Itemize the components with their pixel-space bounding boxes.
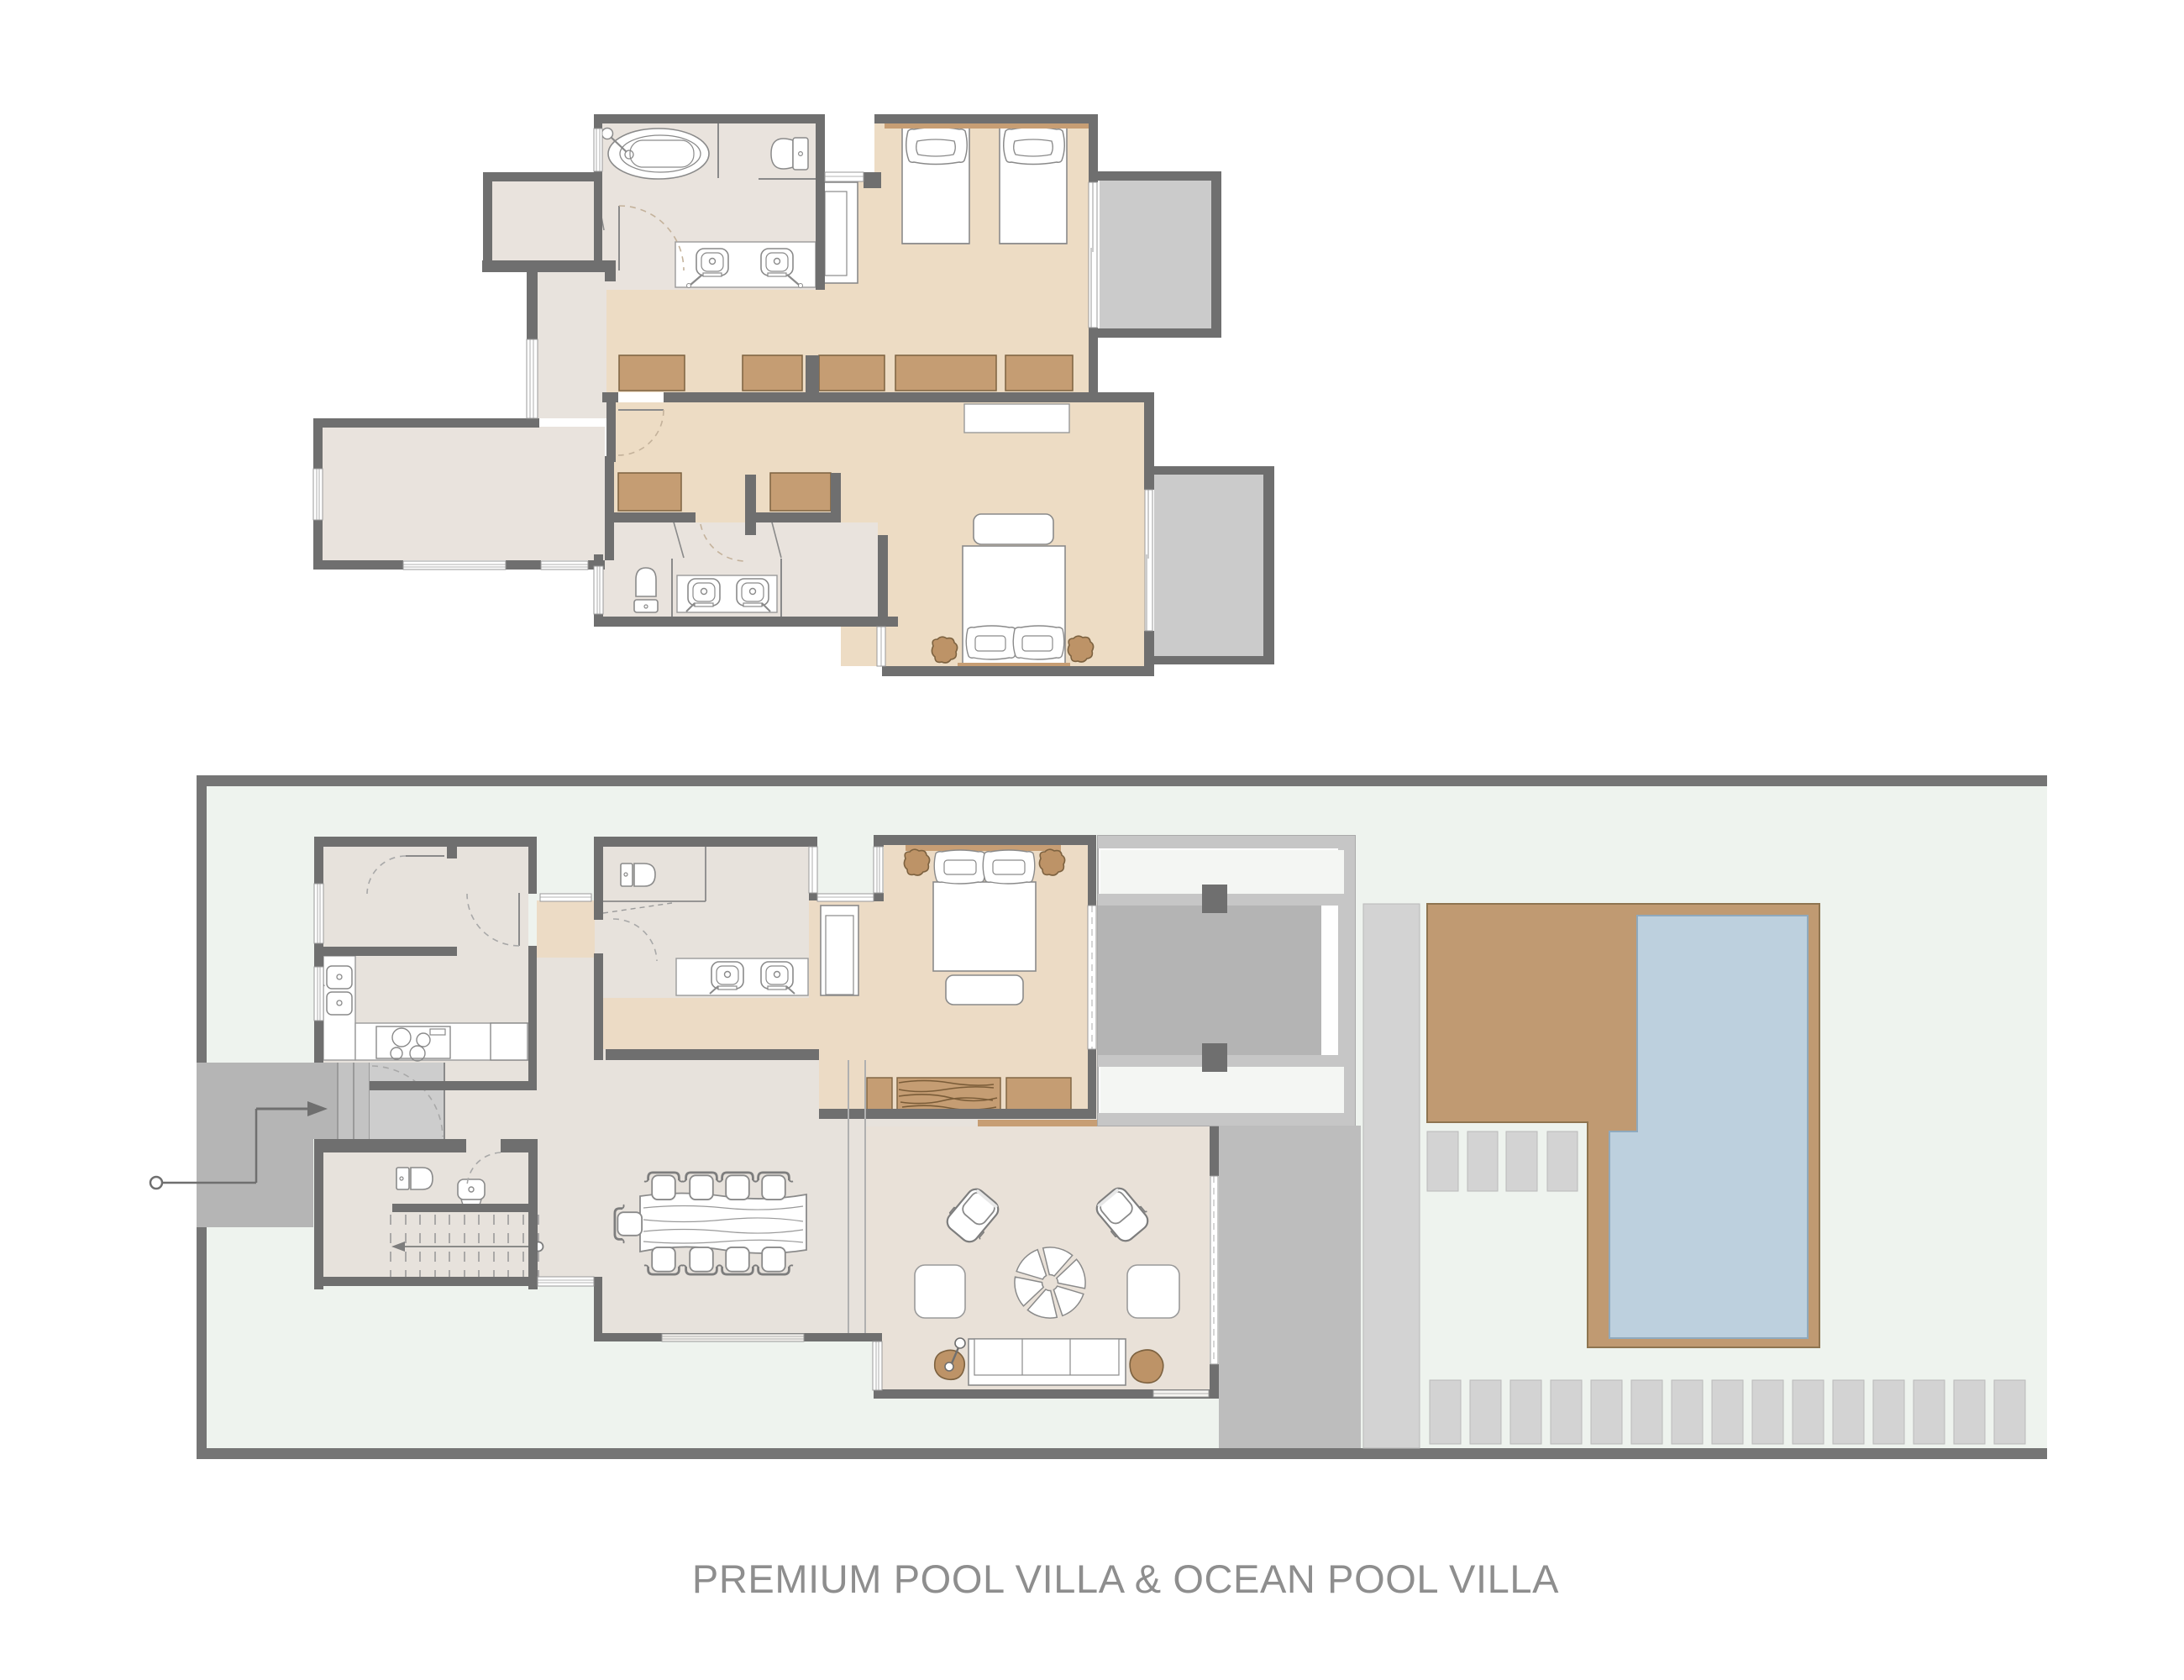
svg-text:PREMIUM POOL VILLA & OCEAN POO: PREMIUM POOL VILLA & OCEAN POOL VILLA [692, 1557, 1559, 1601]
